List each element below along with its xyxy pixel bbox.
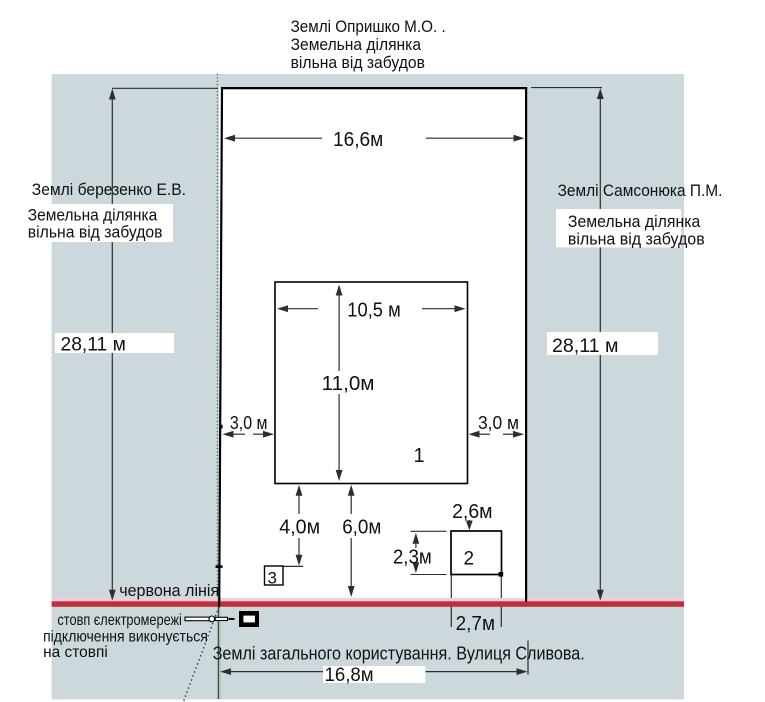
svg-text:Землі березенко Е.В.: Землі березенко Е.В. <box>32 180 186 199</box>
svg-text:2,3м: 2,3м <box>393 547 432 569</box>
svg-text:Землі Самсонюка П.М.: Землі Самсонюка П.М. <box>558 181 723 200</box>
svg-text:16,8м: 16,8м <box>325 665 374 686</box>
svg-text:2: 2 <box>464 549 475 570</box>
svg-text:на стовпі: на стовпі <box>43 644 108 661</box>
svg-text:16,6м: 16,6м <box>333 129 383 151</box>
svg-text:10,5 м: 10,5 м <box>347 300 400 322</box>
svg-text:стовп єлектромережі: стовп єлектромережі <box>57 612 181 629</box>
svg-text:28,11 м: 28,11 м <box>552 336 618 357</box>
svg-text:вільна від забудов: вільна від забудов <box>568 230 705 249</box>
svg-text:підключення виконується: підключення виконується <box>43 629 208 646</box>
svg-text:2,6м: 2,6м <box>452 501 493 523</box>
svg-text:1: 1 <box>414 445 425 467</box>
svg-text:2,7м: 2,7м <box>456 613 495 635</box>
svg-text:3,0 м: 3,0 м <box>230 413 268 433</box>
svg-text:3,0 м: 3,0 м <box>478 413 519 433</box>
svg-text:3: 3 <box>268 569 277 588</box>
svg-text:Землі загального користування.: Землі загального користування. Вулиця Сл… <box>213 644 585 664</box>
svg-text:6,0м: 6,0м <box>342 517 381 539</box>
svg-text:червона лінія: червона лінія <box>119 581 219 600</box>
svg-text:вільна від забудов: вільна від забудов <box>291 53 425 72</box>
svg-text:Землі Опришко М.О. .: Землі Опришко М.О. . <box>291 17 446 36</box>
svg-text:Земельна ділянка: Земельна ділянка <box>291 35 422 54</box>
svg-text:4,0м: 4,0м <box>279 517 320 539</box>
svg-text:28,11 м: 28,11 м <box>61 335 126 356</box>
svg-text:11,0м: 11,0м <box>322 373 375 395</box>
svg-text:вільна від забудов: вільна від забудов <box>28 223 163 242</box>
svg-text:Земельна ділянка: Земельна ділянка <box>568 212 701 231</box>
